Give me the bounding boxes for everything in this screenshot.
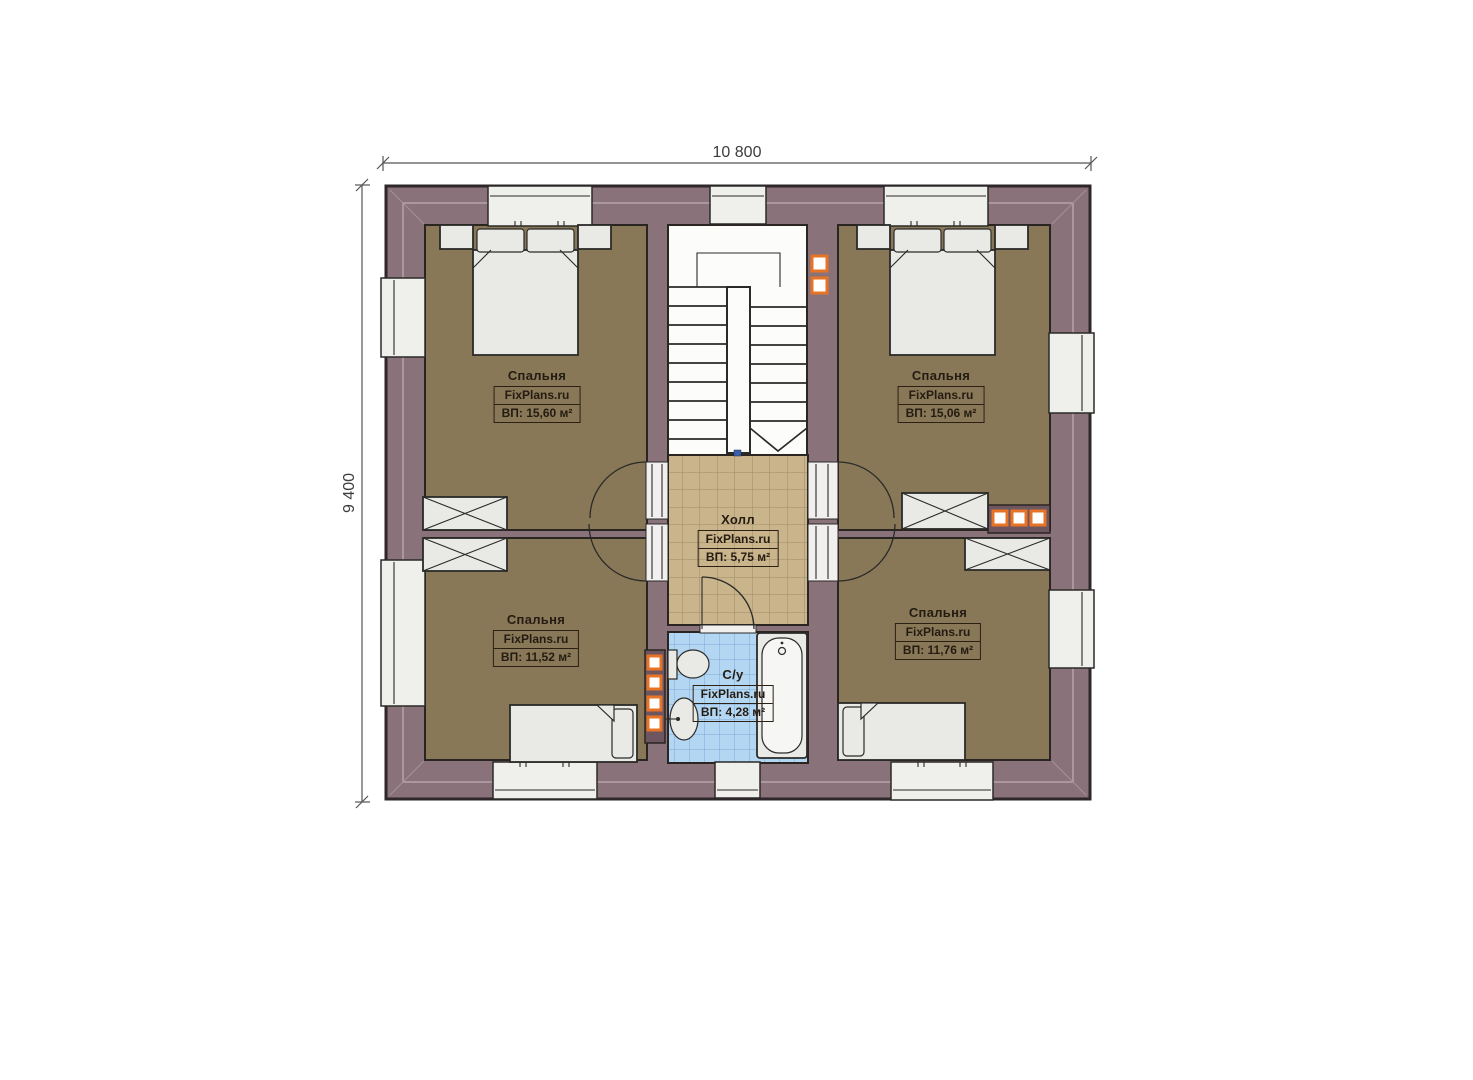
room-name: Холл: [698, 512, 779, 527]
wardrobe-top-right: [902, 493, 988, 529]
room-name: Спальня: [494, 368, 581, 383]
pillow-icon: [477, 229, 524, 252]
nightstand-icon: [995, 225, 1028, 249]
watermark: FixPlans.ru: [896, 624, 980, 641]
room-info-box: FixPlans.ru ВП: 11,52 м²: [493, 630, 579, 667]
room-label-bedroom-top-right: Спальня FixPlans.ru ВП: 15,06 м²: [898, 368, 985, 423]
single-bed-bottom-left: [510, 705, 637, 762]
stair-stringer: [727, 287, 750, 453]
room-info-box: FixPlans.ru ВП: 5,75 м²: [698, 530, 779, 567]
watermark: FixPlans.ru: [494, 631, 578, 648]
nightstand-icon: [857, 225, 890, 249]
dimension-height-label: 9 400: [341, 473, 359, 513]
stair-level-marker: [734, 450, 741, 456]
wardrobe-bottom-right: [965, 538, 1050, 570]
window-top-left: [488, 186, 592, 226]
window-right-upper: [1049, 333, 1094, 413]
pillow-icon: [527, 229, 574, 252]
window-bottom-bathroom: [715, 762, 760, 798]
pillow-icon: [944, 229, 991, 252]
room-area: ВП: 15,60 м²: [495, 404, 580, 422]
window-top-right: [884, 186, 988, 226]
room-area: ВП: 15,06 м²: [899, 404, 984, 422]
window-right-lower: [1049, 590, 1094, 668]
wardrobe-top-left: [423, 497, 507, 530]
room-label-hall: Холл FixPlans.ru ВП: 5,75 м²: [698, 512, 779, 567]
room-area: ВП: 11,52 м²: [494, 648, 578, 666]
room-label-bedroom-bottom-left: Спальня FixPlans.ru ВП: 11,52 м²: [493, 612, 579, 667]
room-info-box: FixPlans.ru ВП: 4,28 м²: [693, 685, 774, 722]
room-info-box: FixPlans.ru ВП: 15,06 м²: [898, 386, 985, 423]
room-name: Спальня: [493, 612, 579, 627]
nightstand-icon: [440, 225, 473, 249]
floor-plan-page: Спальня FixPlans.ru ВП: 15,60 м² Спальня…: [0, 0, 1473, 1080]
room-name: Спальня: [895, 605, 981, 620]
watermark: FixPlans.ru: [694, 686, 773, 703]
room-label-bedroom-top-left: Спальня FixPlans.ru ВП: 15,60 м²: [494, 368, 581, 423]
wardrobe-bottom-left: [423, 538, 507, 571]
window-left-upper: [381, 278, 425, 357]
room-info-box: FixPlans.ru ВП: 11,76 м²: [895, 623, 981, 660]
single-bed-bottom-right: [838, 703, 965, 760]
pillow-icon: [612, 709, 633, 758]
watermark: FixPlans.ru: [699, 531, 778, 548]
room-label-bathroom: С/у FixPlans.ru ВП: 4,28 м²: [693, 667, 774, 722]
pillow-icon: [894, 229, 941, 252]
room-info-box: FixPlans.ru ВП: 15,60 м²: [494, 386, 581, 423]
room-label-bedroom-bottom-right: Спальня FixPlans.ru ВП: 11,76 м²: [895, 605, 981, 660]
room-area: ВП: 5,75 м²: [699, 548, 778, 566]
watermark: FixPlans.ru: [899, 387, 984, 404]
mattress: [473, 250, 578, 355]
nightstand-icon: [578, 225, 611, 249]
window-left-lower: [381, 560, 425, 706]
vent-block-right-wall: [988, 505, 1050, 533]
watermark: FixPlans.ru: [495, 387, 580, 404]
window-bottom-right: [891, 762, 993, 800]
room-name: Спальня: [898, 368, 985, 383]
room-name: С/у: [693, 667, 774, 682]
room-area: ВП: 11,76 м²: [896, 641, 980, 659]
window-top-center: [710, 186, 766, 224]
window-bottom-left: [493, 762, 597, 799]
vent-block-bathroom-wall: [645, 650, 665, 743]
mattress: [890, 250, 995, 355]
dimension-width-label: 10 800: [713, 144, 762, 162]
room-area: ВП: 4,28 м²: [694, 703, 773, 721]
